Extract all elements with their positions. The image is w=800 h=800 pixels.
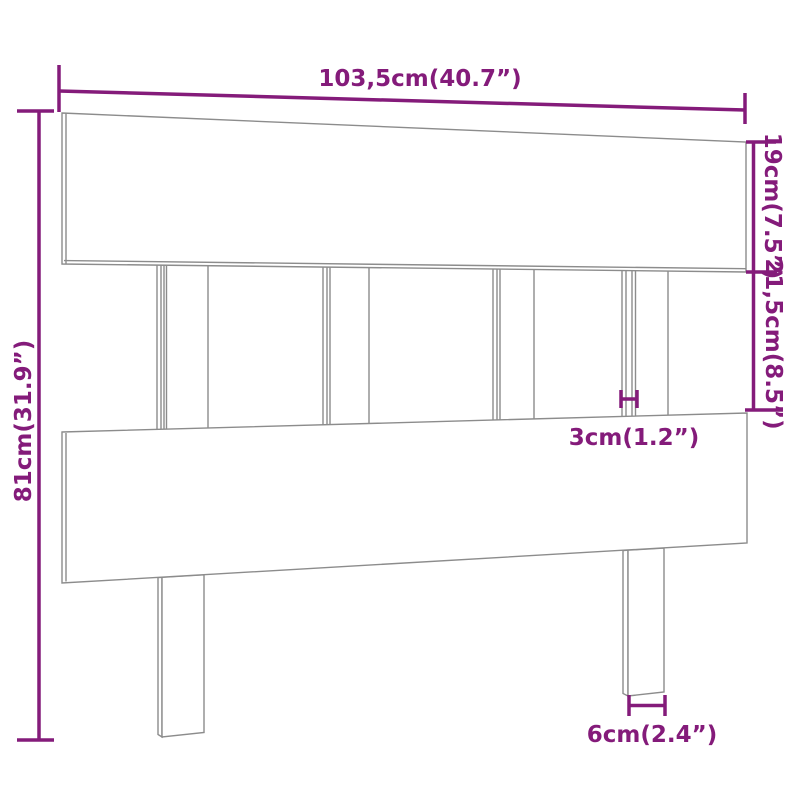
top-board-outline: [62, 113, 746, 272]
headboard-right-leg: [623, 548, 664, 696]
headboard-slat-4: [622, 271, 668, 417]
headboard-slat-1: [157, 265, 208, 430]
right-leg-side-face: [623, 550, 628, 696]
leg-width-dimension-label: 6cm(2.4”): [587, 722, 718, 748]
gap-height-dimension-label: 21,5cm(8.5”): [760, 258, 786, 429]
right-leg-front-face: [628, 548, 664, 696]
dimension-line: [59, 91, 745, 110]
left-leg-front-face: [162, 575, 204, 737]
width-dimension-label: 103,5cm(40.7”): [318, 66, 521, 92]
leg-width-dimension: [629, 695, 665, 716]
headboard-slat-3: [493, 269, 534, 420]
slat-thickness-dimension-label: 3cm(1.2”): [569, 425, 700, 451]
top-board-height-dimension-label: 19cm(7.5”): [759, 133, 785, 280]
headboard-slat-2: [323, 267, 369, 425]
diagram-canvas: 103,5cm(40.7”) 81cm(31.9”) 19cm(7.5”) 21…: [0, 0, 800, 800]
headboard-top-board: [62, 113, 746, 272]
total-height-dimension-label: 81cm(31.9”): [11, 340, 37, 503]
headboard-left-leg: [158, 575, 204, 737]
slat-thickness-dimension: [621, 390, 637, 408]
